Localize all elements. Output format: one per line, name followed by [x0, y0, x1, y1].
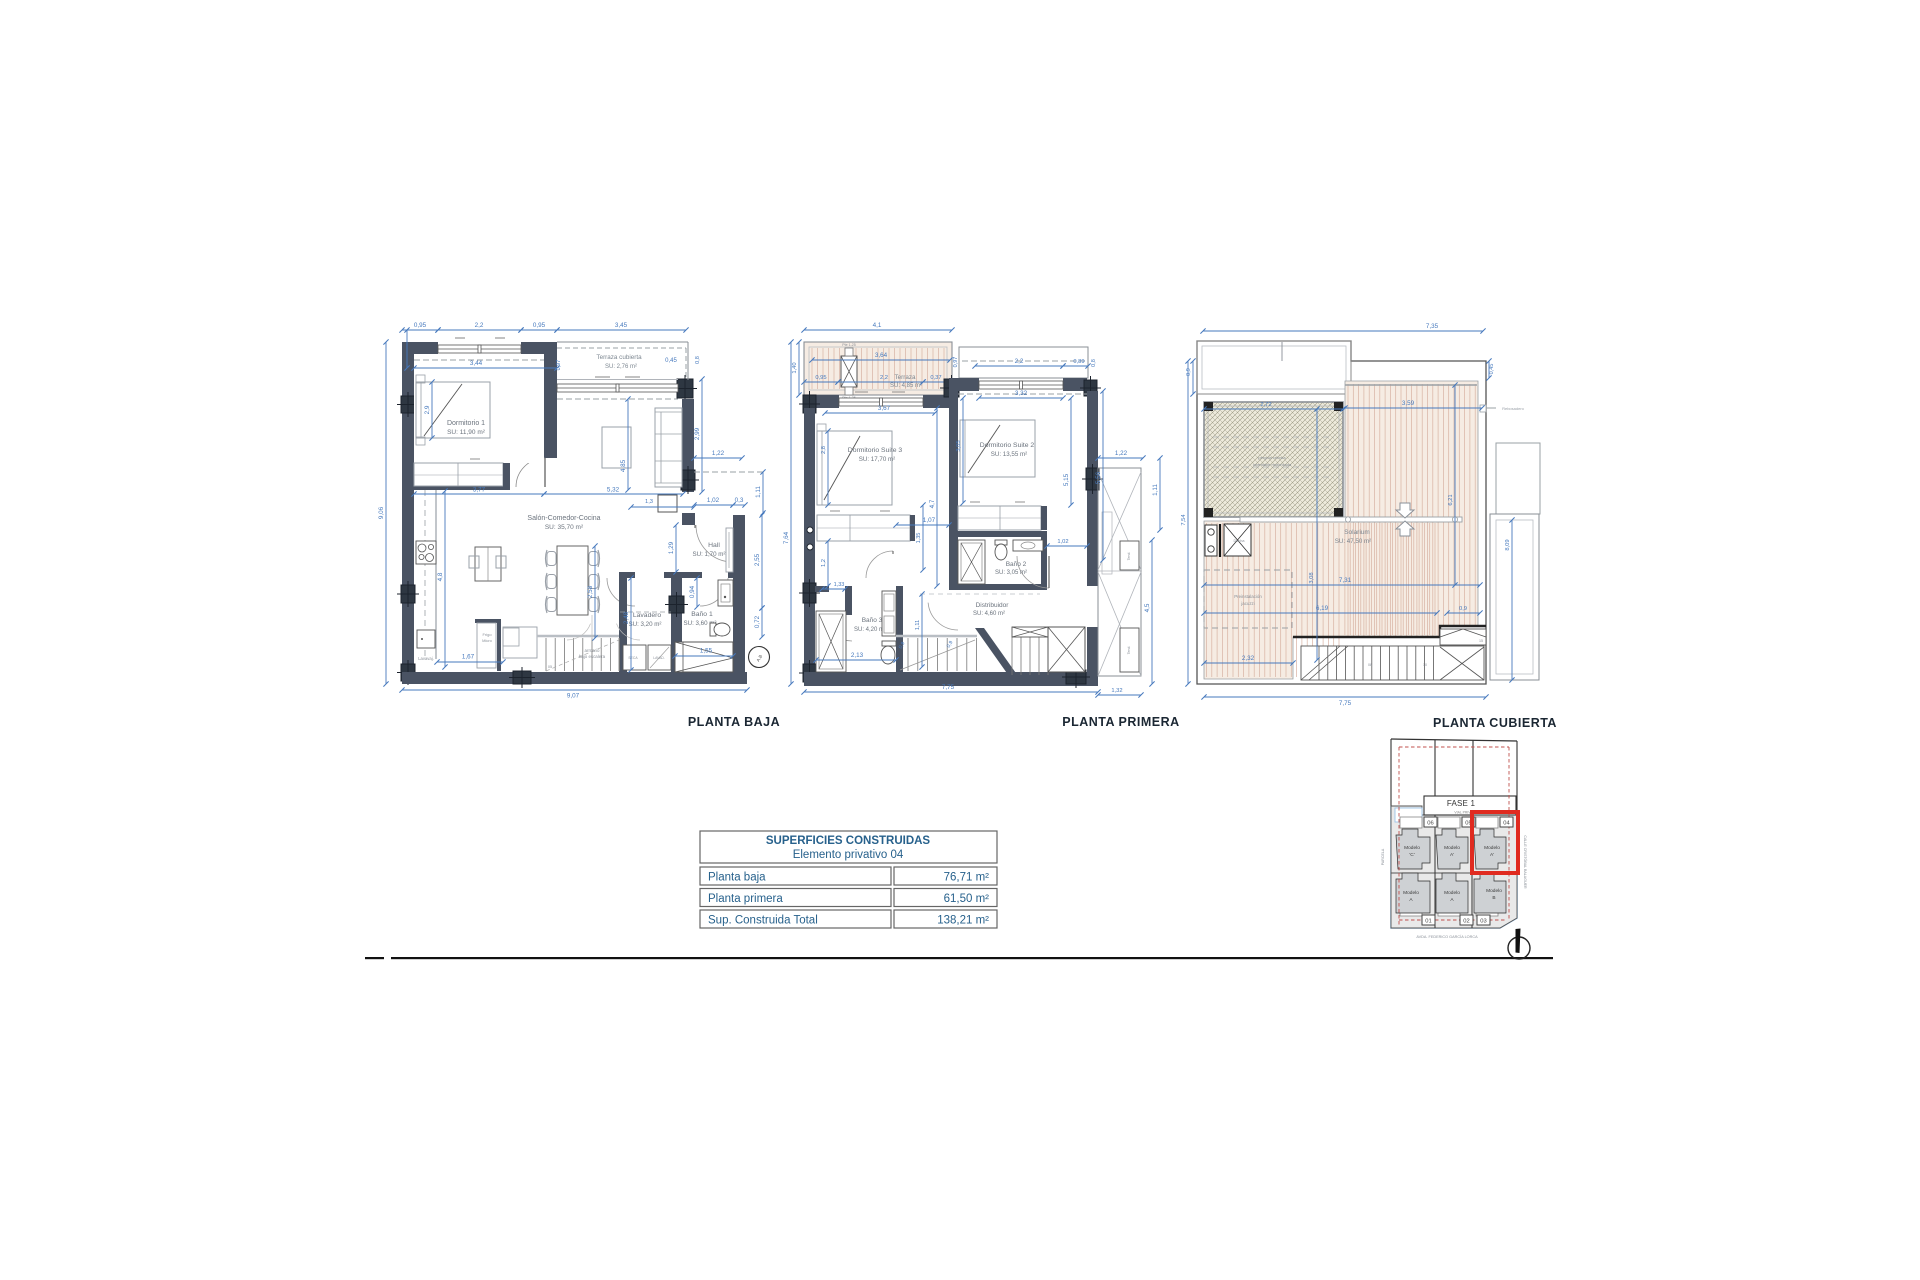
svg-text:Baño 3: Baño 3 — [862, 617, 883, 624]
svg-text:9,07: 9,07 — [567, 693, 580, 700]
svg-text:05: 05 — [548, 665, 552, 669]
svg-text:0,37: 0,37 — [930, 375, 941, 381]
svg-text:9,06: 9,06 — [378, 506, 385, 519]
svg-text:SU: 17,70 m²: SU: 17,70 m² — [859, 456, 895, 463]
svg-text:0,97: 0,97 — [556, 360, 562, 371]
svg-text:CALLE CRISTÓBAL BALAGUER: CALLE CRISTÓBAL BALAGUER — [1523, 835, 1528, 889]
svg-text:Dormitorio Suite 3: Dormitorio Suite 3 — [848, 447, 903, 454]
svg-text:0,89: 0,89 — [1073, 359, 1084, 365]
svg-text:2,13: 2,13 — [851, 652, 864, 659]
svg-text:1,07: 1,07 — [923, 517, 936, 524]
svg-text:Baño 2: Baño 2 — [1006, 561, 1027, 568]
svg-text:7,54: 7,54 — [1181, 514, 1187, 526]
svg-text:2,32: 2,32 — [1242, 655, 1255, 662]
svg-text:SU: 11,90 m²: SU: 11,90 m² — [447, 429, 486, 436]
svg-text:SU: 35,70 m²: SU: 35,70 m² — [545, 524, 584, 531]
svg-text:8,09: 8,09 — [1505, 539, 1511, 550]
svg-text:3,77: 3,77 — [473, 487, 486, 494]
svg-text:2,99: 2,99 — [694, 427, 701, 440]
svg-text:1,22: 1,22 — [1115, 450, 1128, 457]
svg-text:SU: 13,55 m²: SU: 13,55 m² — [991, 451, 1027, 458]
svg-text:Elemento privativo 04: Elemento privativo 04 — [793, 849, 904, 861]
svg-text:1,35: 1,35 — [916, 533, 922, 544]
svg-text:jacuzzi: jacuzzi — [1240, 601, 1254, 606]
svg-text:1,11: 1,11 — [915, 620, 921, 630]
svg-text:0,95: 0,95 — [533, 322, 546, 329]
svg-text:2,58: 2,58 — [587, 585, 594, 598]
svg-text:5,32: 5,32 — [607, 487, 620, 494]
svg-text:Planta primera: Planta primera — [708, 893, 783, 905]
svg-text:2,55: 2,55 — [754, 553, 761, 566]
svg-text:3,32: 3,32 — [1015, 390, 1028, 397]
svg-text:08: 08 — [1368, 663, 1372, 667]
svg-text:SU: 1,70 m²: SU: 1,70 m² — [692, 551, 725, 558]
svg-text:0,94: 0,94 — [689, 585, 696, 598]
svg-text:3,67: 3,67 — [878, 405, 891, 412]
svg-text:3,59: 3,59 — [1402, 400, 1415, 407]
svg-text:orientable motorizada: orientable motorizada — [1253, 462, 1292, 467]
svg-text:6,19: 6,19 — [1316, 605, 1329, 612]
svg-text:AVDA. FEDERICO GARCÍA LORCA: AVDA. FEDERICO GARCÍA LORCA — [1416, 935, 1478, 939]
svg-text:2,9: 2,9 — [424, 405, 431, 414]
svg-text:1,67: 1,67 — [462, 654, 475, 661]
svg-text:Rebosadero: Rebosadero — [1502, 406, 1525, 411]
svg-text:PARCELA: PARCELA — [1381, 848, 1385, 865]
svg-text:1,02: 1,02 — [707, 497, 720, 504]
svg-text:Hall: Hall — [708, 542, 720, 549]
svg-text:7,35: 7,35 — [1426, 323, 1439, 330]
svg-text:3,08: 3,08 — [1309, 572, 1315, 583]
svg-text:04: 04 — [1503, 821, 1510, 827]
svg-text:0,3: 0,3 — [735, 497, 744, 504]
svg-text:0,45: 0,45 — [665, 358, 677, 364]
svg-text:1,32: 1,32 — [1111, 688, 1122, 694]
svg-text:SU: 2,76 m²: SU: 2,76 m² — [605, 364, 637, 370]
svg-text:Modelo: Modelo — [1444, 845, 1460, 851]
svg-text:0,9: 0,9 — [1186, 368, 1192, 376]
svg-text:bajo escalera: bajo escalera — [579, 654, 606, 659]
svg-text:2,48: 2,48 — [623, 611, 630, 624]
svg-text:Modelo: Modelo — [1403, 890, 1419, 896]
svg-text:2,8: 2,8 — [821, 446, 827, 454]
svg-text:3,05: 3,05 — [956, 440, 962, 451]
svg-text:61,50 m²: 61,50 m² — [944, 893, 990, 905]
svg-text:1,55: 1,55 — [700, 648, 713, 655]
svg-text:Salón-Comedor-Cocina: Salón-Comedor-Cocina — [527, 515, 600, 522]
svg-text:SU: 47,50 m²: SU: 47,50 m² — [1335, 538, 1371, 545]
svg-text:Lavavaj.: Lavavaj. — [418, 656, 434, 661]
svg-text:3,44: 3,44 — [470, 360, 483, 367]
svg-text:0,8: 0,8 — [1091, 359, 1097, 367]
svg-text:76,71 m²: 76,71 m² — [944, 872, 990, 884]
svg-text:02: 02 — [1463, 919, 1469, 925]
svg-text:1,11: 1,11 — [1152, 484, 1159, 496]
svg-text:FASE 1: FASE 1 — [1447, 799, 1476, 808]
svg-text:0,95: 0,95 — [815, 375, 826, 381]
svg-text:3,45: 3,45 — [615, 322, 628, 329]
svg-text:Tend.: Tend. — [1127, 552, 1131, 561]
svg-text:1,02: 1,02 — [1057, 539, 1068, 545]
svg-text:Modelo: Modelo — [1404, 845, 1420, 851]
svg-text:4,8: 4,8 — [437, 572, 444, 581]
svg-text:SECA: SECA — [628, 656, 638, 660]
svg-text:15: 15 — [1479, 639, 1483, 643]
svg-text:7,75: 7,75 — [942, 684, 955, 691]
svg-text:2,2: 2,2 — [1015, 358, 1024, 365]
svg-text:2,2: 2,2 — [880, 375, 888, 381]
svg-text:Pte 1-25: Pte 1-25 — [842, 343, 856, 347]
svg-text:4,7: 4,7 — [929, 499, 936, 508]
svg-text:0,97: 0,97 — [953, 357, 959, 368]
svg-text:4,1: 4,1 — [873, 322, 882, 329]
svg-text:pérgola celosía: pérgola celosía — [1258, 455, 1286, 460]
svg-text:03: 03 — [1480, 919, 1486, 925]
svg-text:3,64: 3,64 — [875, 352, 888, 359]
svg-text:0,72: 0,72 — [754, 615, 761, 628]
svg-text:1,40: 1,40 — [792, 362, 798, 373]
svg-text:5,56: 5,56 — [1095, 471, 1102, 484]
svg-text:SU: 4,20 m²: SU: 4,20 m² — [854, 627, 886, 633]
svg-text:7,31: 7,31 — [1339, 577, 1352, 584]
svg-text:Planta baja: Planta baja — [708, 872, 766, 884]
svg-text:Micro: Micro — [482, 638, 493, 643]
svg-text:138,21 m²: 138,21 m² — [937, 915, 989, 927]
svg-text:0,45: 0,45 — [1489, 364, 1495, 375]
svg-text:1,33: 1,33 — [834, 582, 845, 588]
svg-text:Dormitorio Suite 2: Dormitorio Suite 2 — [980, 442, 1035, 449]
svg-text:Solarium: Solarium — [1344, 529, 1370, 536]
svg-text:1,2: 1,2 — [821, 559, 827, 567]
svg-text:PLANTA CUBIERTA: PLANTA CUBIERTA — [1433, 716, 1557, 730]
svg-text:7,64: 7,64 — [783, 531, 790, 544]
svg-text:10: 10 — [1423, 663, 1427, 667]
svg-text:Terraza cubierta: Terraza cubierta — [596, 354, 642, 361]
svg-text:LAVAD.: LAVAD. — [653, 656, 665, 660]
svg-text:7,75: 7,75 — [1339, 700, 1352, 707]
svg-text:1,11: 1,11 — [755, 486, 762, 498]
svg-text:PLANTA PRIMERA: PLANTA PRIMERA — [1062, 715, 1179, 729]
svg-text:Lavadero: Lavadero — [633, 612, 662, 619]
svg-text:'C': 'C' — [1409, 852, 1414, 858]
svg-text:06: 06 — [1427, 821, 1433, 827]
svg-text:Sup. Construida Total: Sup. Construida Total — [708, 915, 818, 927]
svg-text:Modelo: Modelo — [1484, 845, 1500, 851]
svg-text:SU: 3,05 m²: SU: 3,05 m² — [995, 570, 1027, 576]
svg-text:SU: 4,60 m²: SU: 4,60 m² — [973, 611, 1005, 617]
svg-text:6,21: 6,21 — [1448, 494, 1454, 505]
svg-text:Frigo: Frigo — [482, 632, 492, 637]
svg-text:Terraza: Terraza — [895, 374, 916, 381]
svg-text:A': A' — [1490, 852, 1494, 858]
svg-text:Distribuidor: Distribuidor — [976, 602, 1010, 609]
svg-text:0,8: 0,8 — [695, 356, 701, 364]
svg-text:armario: armario — [585, 648, 600, 653]
svg-text:Modelo: Modelo — [1486, 888, 1502, 894]
svg-text:4,5: 4,5 — [1144, 603, 1151, 612]
svg-text:Modelo: Modelo — [1444, 890, 1460, 896]
svg-text:2,72: 2,72 — [1260, 402, 1271, 408]
svg-text:Baño 1: Baño 1 — [691, 611, 713, 618]
svg-text:Ducha: Ducha — [1234, 539, 1246, 543]
svg-text:1,22: 1,22 — [712, 450, 725, 457]
svg-text:Dormitorio 1: Dormitorio 1 — [447, 420, 485, 427]
svg-text:1,3: 1,3 — [645, 499, 653, 505]
svg-text:0,9: 0,9 — [1459, 606, 1467, 612]
svg-text:0,95: 0,95 — [414, 322, 427, 329]
svg-text:PLANTA BAJA: PLANTA BAJA — [688, 715, 780, 729]
svg-text:5,15: 5,15 — [1063, 473, 1070, 486]
svg-text:SUPERFICIES CONSTRUIDAS: SUPERFICIES CONSTRUIDAS — [766, 835, 931, 847]
svg-text:4,85: 4,85 — [620, 459, 627, 472]
svg-text:1,29: 1,29 — [668, 541, 675, 554]
svg-text:Tend.: Tend. — [1127, 646, 1131, 655]
svg-text:01: 01 — [1425, 919, 1431, 925]
svg-text:B: B — [1492, 895, 1495, 901]
svg-text:2,2: 2,2 — [475, 322, 484, 329]
svg-text:SU: 4,85 m²: SU: 4,85 m² — [890, 383, 922, 389]
svg-text:Preinstalación: Preinstalación — [1234, 594, 1262, 599]
svg-text:A': A' — [1450, 852, 1454, 858]
svg-text:SU: 3,20 m²: SU: 3,20 m² — [628, 621, 661, 628]
